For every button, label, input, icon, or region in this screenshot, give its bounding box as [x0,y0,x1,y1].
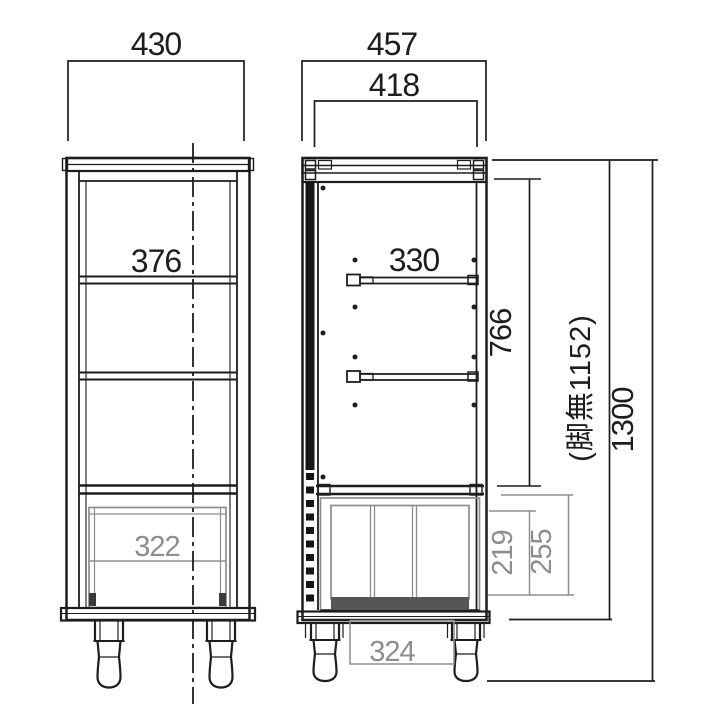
dim-side-height-without-legs: (脚無1152) [564,314,597,462]
side-drawer [321,498,480,611]
dim-side-inner-depth: 418 [369,67,420,103]
dim-side-overall-height: 1300 [605,387,640,453]
side-carcass [303,158,487,620]
side-back-panel [306,182,315,470]
front-divider [79,486,237,494]
dim-line-front-width [68,61,244,141]
side-top-panel [303,158,487,182]
dimension-drawing: 430 457 418 376 330 322 766 219 255 324 [0,0,718,711]
side-shelf-2 [347,371,478,382]
dim-side-lower-inner-height: 219 [487,530,519,575]
dim-front-drawer-width: 322 [134,531,179,563]
dim-side-overall-depth: 457 [367,26,418,62]
front-leg-left [94,621,125,688]
dim-front-overall-width: 430 [131,26,182,62]
side-base [298,612,490,624]
dim-side-leg-span: 324 [369,636,415,668]
side-leg-left [306,623,344,681]
front-leg-right [206,621,237,688]
dim-side-shelf-depth: 330 [389,242,440,278]
side-leg-right [448,623,485,681]
drawing-canvas: 430 457 418 376 330 322 766 219 255 324 [0,0,718,711]
front-shelf-2 [79,373,237,380]
side-divider [316,485,484,496]
dim-side-upper-height: 766 [483,309,518,358]
dim-front-shelf-width: 376 [131,243,182,279]
side-view [298,158,490,681]
front-view [61,143,255,704]
dim-line-side-inner-depth [315,101,478,147]
dimensions: 430 457 418 376 330 322 766 219 255 324 [68,26,658,681]
front-base [61,608,255,621]
dim-side-lower-section-height: 255 [526,529,558,574]
pin-hole-dots [321,186,477,480]
